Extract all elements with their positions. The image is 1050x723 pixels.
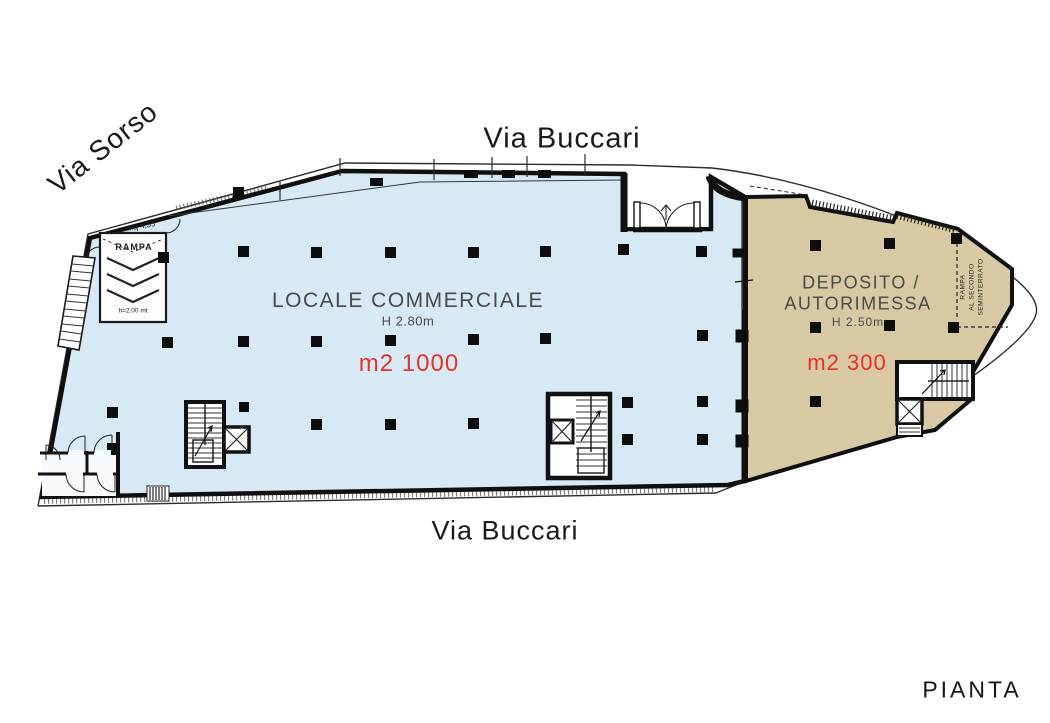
ramp-basement-note: RAMPA AL SECONDO SEMINTERRATO (959, 258, 986, 315)
street-label-via-buccari-bottom: Via Buccari (431, 516, 578, 547)
bottom-gate-hatch (147, 486, 169, 501)
drawing-title: PIANTA (922, 677, 1021, 704)
floor-plan-canvas: Via Sorso Via Buccari Via Buccari LOCALE… (0, 0, 1050, 723)
ramp-note-line1: RAMPA (959, 258, 968, 315)
deposit-height: H 2.50m (832, 315, 884, 329)
floor-plan-drawing (0, 0, 1050, 723)
ramp-room-clearance: h=2.00 mt (118, 308, 147, 315)
deposit-area-size: m2 300 (807, 350, 886, 376)
deposit-title-line1: DEPOSITO / (802, 273, 920, 294)
commercial-height: H 2.80m (382, 314, 435, 329)
deposit-area-shape (746, 196, 1012, 481)
ramp-room-label: RAMPA (115, 242, 152, 252)
street-label-via-buccari-top: Via Buccari (483, 123, 640, 156)
ramp-note-line3: SEMINTERRATO (977, 258, 986, 315)
commercial-area-size: m2 1000 (359, 350, 459, 378)
ramp-note-line2: AL SECONDO (968, 258, 977, 315)
commercial-title: LOCALE COMMERCIALE (272, 289, 544, 313)
stairwell-central (548, 394, 610, 478)
deposit-title-line2: AUTORIMESSA (784, 294, 931, 315)
